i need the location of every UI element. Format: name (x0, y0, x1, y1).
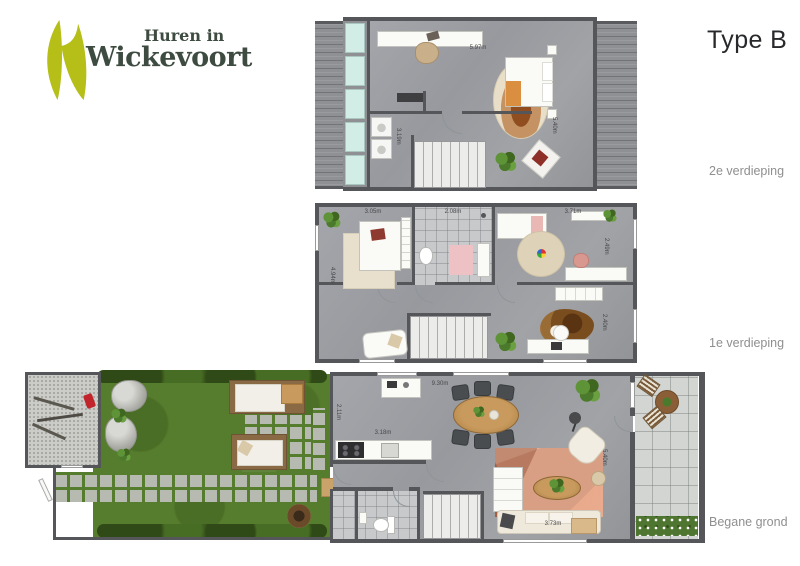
dim-left-depth: 4.94m (329, 255, 335, 295)
page-title: Type B (707, 26, 787, 55)
garden-fence (53, 537, 330, 540)
skylight-window (345, 89, 365, 119)
window (503, 539, 587, 543)
floor-lamp (569, 412, 581, 424)
tv-cabinet (493, 467, 523, 512)
label-begane-grond: Begane grond (709, 515, 788, 529)
window (633, 309, 637, 343)
washer (371, 117, 392, 137)
logo-line2: Wickevoort (86, 42, 252, 73)
floorplan-2e-verdieping: 5.97m 3.19m 5.40m (315, 15, 637, 197)
staircase (414, 141, 486, 188)
brand-logo: Huren in Wickevoort (36, 16, 256, 100)
wall (367, 17, 370, 191)
sideboard (555, 287, 603, 301)
window (315, 225, 319, 251)
skylight-window (345, 56, 365, 86)
dim-laundry: 3.19m (395, 115, 401, 157)
wall (462, 111, 532, 114)
fire-pit (287, 504, 311, 528)
wall (417, 487, 420, 539)
garden-fence (53, 466, 56, 540)
skylights (343, 21, 367, 187)
plant (549, 478, 565, 494)
dim-kids-room: 3.71m (541, 209, 605, 215)
nightstand (547, 45, 557, 55)
wall (426, 111, 442, 114)
dim-living: 3.73m (523, 521, 583, 527)
wc-basin (359, 512, 367, 524)
cooktop (338, 442, 364, 458)
dim-hall: 2.11m (335, 394, 341, 430)
staircase (410, 316, 488, 359)
toy-ball (537, 249, 546, 258)
wall (633, 539, 705, 543)
dining-chair (474, 381, 491, 396)
table-greens (473, 406, 485, 418)
bath-mat (449, 245, 473, 275)
bed-pillow (542, 83, 553, 102)
bed-throw (506, 81, 521, 106)
wall (593, 17, 597, 191)
window (453, 372, 509, 376)
staircase (423, 494, 481, 539)
dim-right-upper: 2.49m (603, 227, 609, 265)
wall (343, 17, 597, 21)
dryer (371, 139, 392, 159)
kitchen-sink (381, 443, 399, 458)
desk-chair (553, 325, 569, 341)
wall (330, 539, 635, 543)
laptop (551, 342, 562, 350)
wall (492, 207, 495, 285)
skylight-window (345, 23, 365, 53)
dining-chair (451, 429, 470, 446)
dim-right-lower: 2.40m (601, 303, 607, 341)
skylight-window (345, 155, 365, 185)
wall (517, 282, 633, 285)
floorplan-begane-grond: 9.30m 2.11m 3.18m (25, 368, 705, 545)
wall (412, 207, 415, 285)
plant (603, 209, 617, 223)
toilet (419, 247, 433, 265)
floorplan-sheet: Huren in Wickevoort Type B 2e verdieping… (0, 0, 800, 566)
window (377, 372, 417, 376)
skylight-window (345, 122, 365, 152)
roof-left (315, 21, 345, 189)
wall (699, 372, 705, 543)
kids-desk (565, 267, 627, 281)
bush (117, 448, 131, 462)
wall (333, 487, 393, 491)
label-2e-verdieping: 2e verdieping (709, 164, 784, 178)
kids-chair (573, 253, 589, 268)
dim-width: 5.97m (443, 45, 513, 51)
dim-bathroom: 2.08m (421, 209, 485, 215)
desk-chair (415, 42, 439, 64)
dim-bedroom: 3.05m (343, 209, 403, 215)
wall (315, 203, 637, 207)
wall (481, 491, 484, 539)
plant (323, 211, 341, 229)
closet (401, 217, 411, 269)
wardrobe-rail (397, 93, 423, 102)
paver-strip (313, 408, 328, 470)
plate (489, 410, 499, 420)
wall (355, 491, 358, 539)
decor (387, 381, 397, 388)
paver-path (55, 472, 317, 502)
bush (111, 408, 127, 424)
garden-gate (38, 478, 53, 502)
roof-right (597, 21, 637, 189)
shed-door (61, 465, 83, 468)
plant (575, 378, 601, 404)
plant (495, 151, 517, 173)
flower-bed (636, 516, 698, 536)
garden-sofa-cushions (235, 384, 285, 412)
toilet (373, 518, 389, 532)
floorplan-1e-verdieping: 3.05m 2.08m 3.71m 4.94m 2.49m 2.40m (315, 203, 637, 363)
dim-kitchen: 3.18m (350, 430, 416, 436)
dining-chair (474, 434, 491, 449)
wall (435, 282, 492, 285)
bed-pillow (542, 62, 553, 81)
bed-pillow (370, 228, 385, 241)
dim-depth: 5.40m (551, 103, 557, 147)
label-1e-verdieping: 1e verdieping (709, 336, 784, 350)
plant (495, 331, 517, 353)
dining-table (453, 396, 519, 434)
wall (330, 372, 333, 467)
washbasin (477, 243, 490, 277)
garden-table (281, 384, 303, 404)
wall (367, 111, 426, 114)
window (543, 359, 587, 363)
wall (397, 282, 412, 285)
wall (330, 460, 426, 464)
chaise (362, 329, 408, 359)
window (633, 219, 637, 249)
window (359, 359, 395, 363)
